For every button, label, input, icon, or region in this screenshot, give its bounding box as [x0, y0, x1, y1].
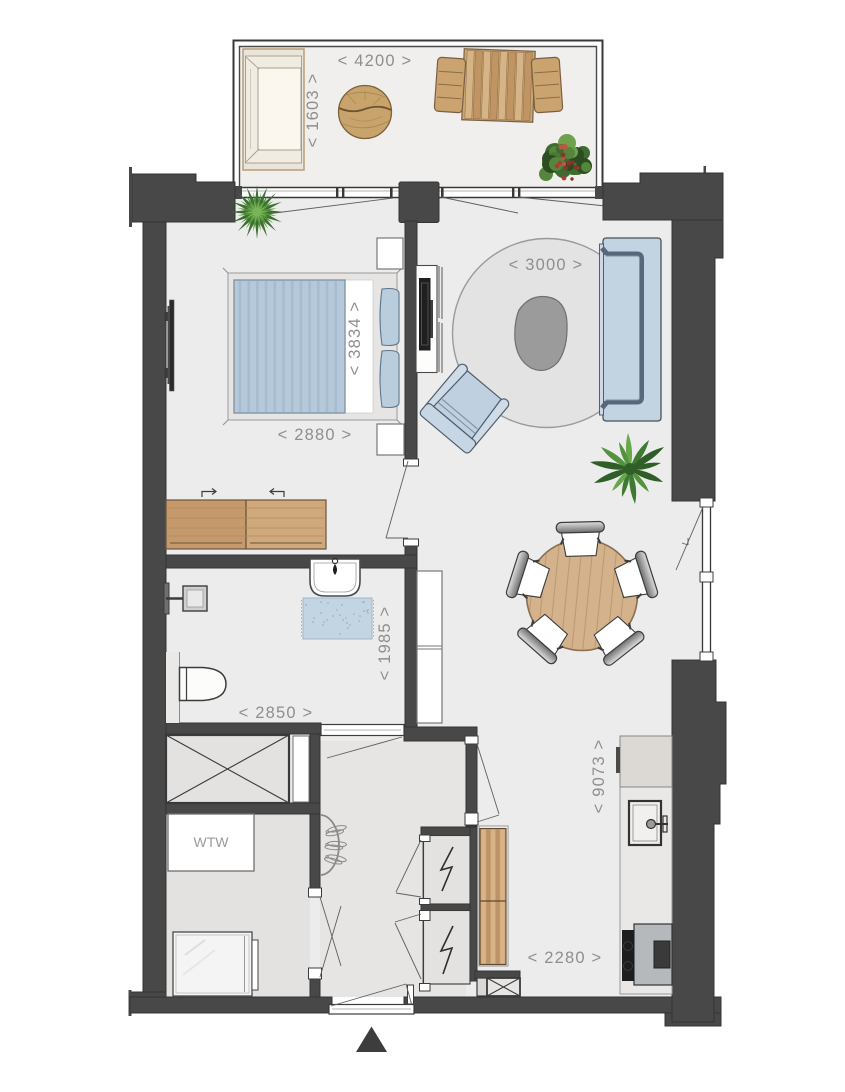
svg-text:< 2850 >: < 2850 >	[239, 704, 314, 722]
svg-text:< 4200 >: < 4200 >	[338, 52, 413, 70]
svg-text:< 3834 >: < 3834 >	[346, 301, 364, 376]
svg-text:< 1603 >: < 1603 >	[304, 73, 322, 148]
svg-text:< 2280 >: < 2280 >	[528, 949, 603, 967]
svg-text:WTW: WTW	[194, 834, 230, 850]
svg-text:< 2880 >: < 2880 >	[278, 426, 353, 444]
svg-text:< 3000 >: < 3000 >	[509, 256, 584, 274]
svg-text:< 1985 >: < 1985 >	[376, 606, 394, 681]
svg-text:< 9073 >: < 9073 >	[590, 739, 608, 814]
